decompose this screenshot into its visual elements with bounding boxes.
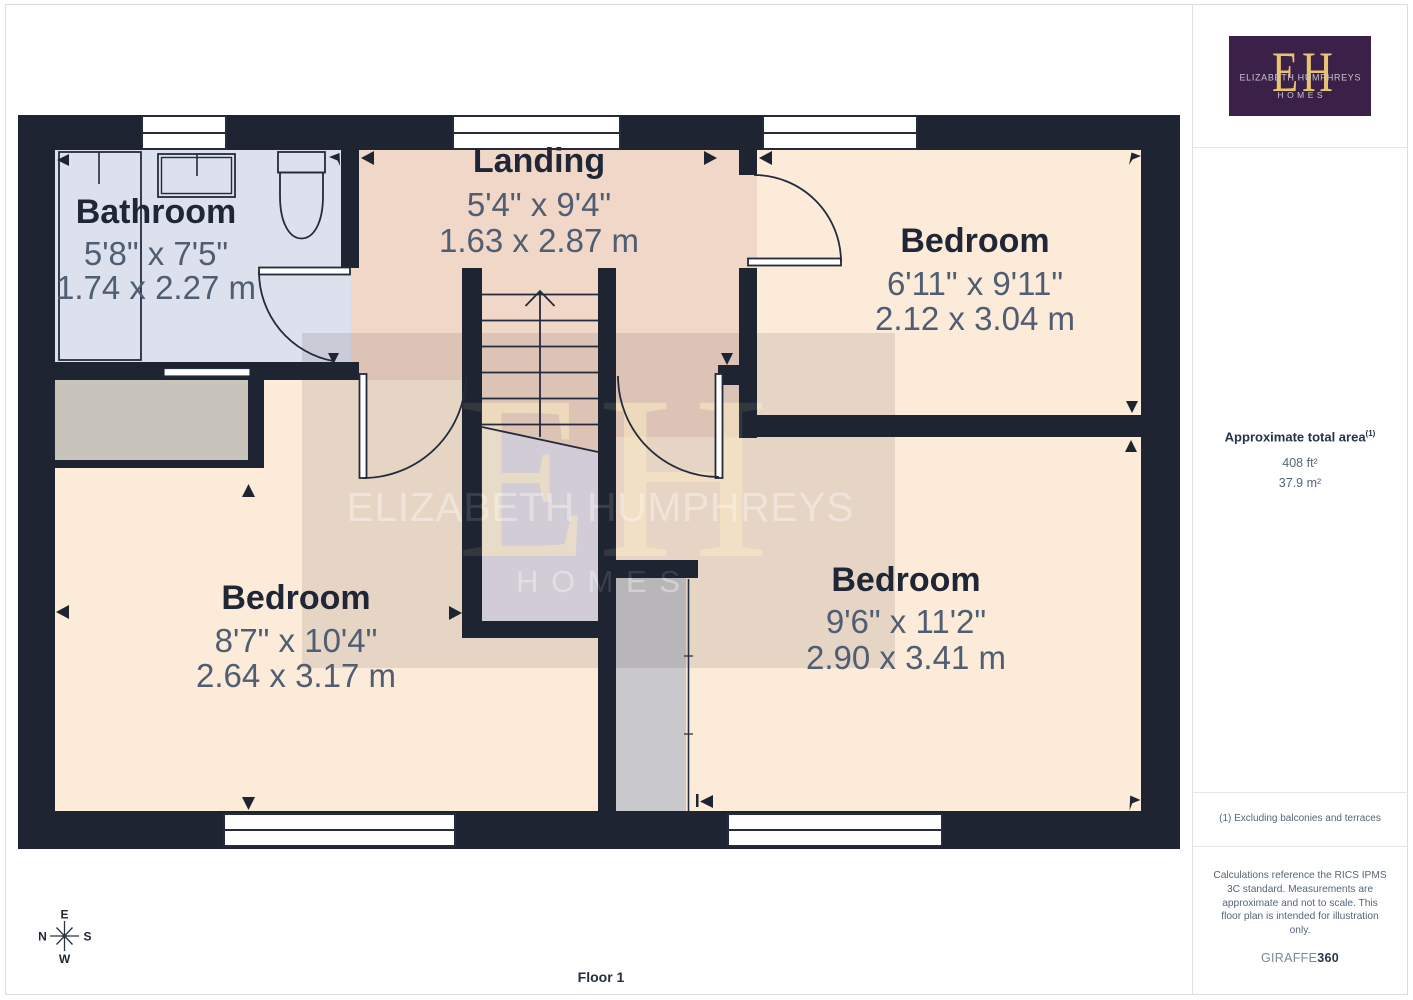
- svg-text:E: E: [60, 908, 68, 922]
- svg-text:W: W: [59, 952, 71, 966]
- svg-text:S: S: [83, 930, 91, 944]
- svg-text:N: N: [38, 930, 47, 944]
- svg-text:ELIZABETH HUMPHREYS: ELIZABETH HUMPHREYS: [1240, 73, 1361, 83]
